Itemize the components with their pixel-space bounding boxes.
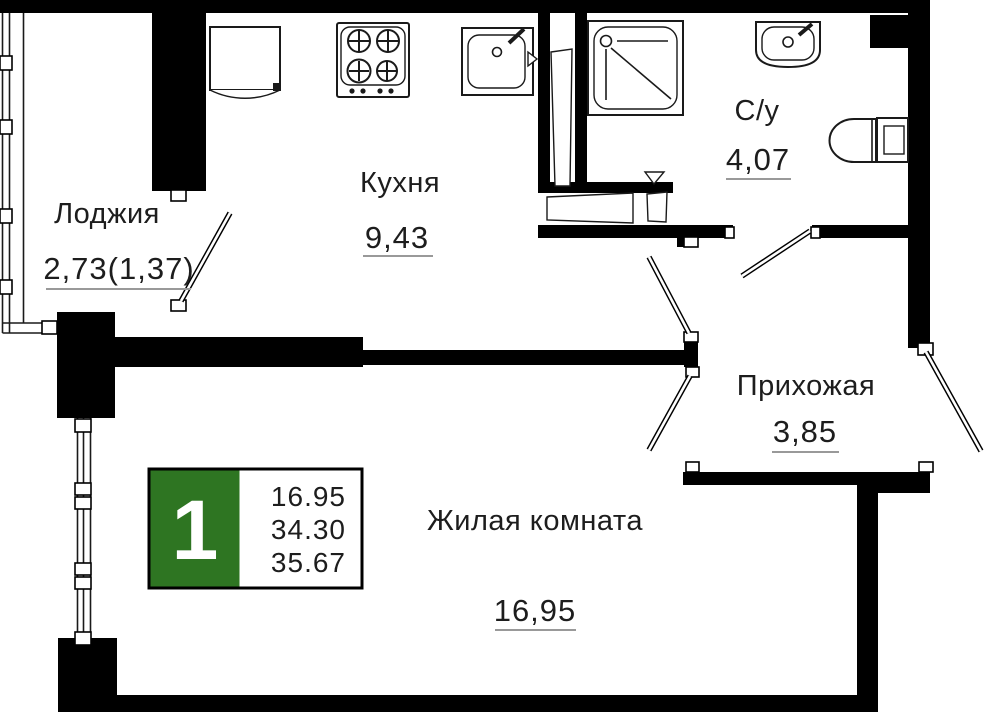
loggia-mullion-2 xyxy=(0,120,12,134)
living-window-mullion-2 xyxy=(75,483,91,495)
kitchen-door xyxy=(649,237,698,342)
stove-burner-3 xyxy=(348,60,371,83)
bathroom-door-jamb-right xyxy=(811,227,820,238)
closet-leaf-large xyxy=(547,193,633,223)
room-name-bath: С/у xyxy=(735,95,780,127)
stove-knob-1 xyxy=(349,88,354,93)
wall-living-left-bottom-block xyxy=(58,638,117,712)
fridge-hinge xyxy=(273,83,280,91)
stove-knob-2 xyxy=(360,88,365,93)
fridge-icon xyxy=(210,27,280,98)
loggia-mullion-5 xyxy=(42,321,57,334)
wall-bath-bottom-left xyxy=(538,225,733,238)
badge-area-main: 34.30 xyxy=(271,514,346,545)
stove-burner-1 xyxy=(348,30,370,52)
wall-bath-bottom-right xyxy=(812,225,908,238)
loggia-mullion-1 xyxy=(0,56,12,70)
wall-right-outer xyxy=(908,13,930,348)
floor-plan: Лоджия 2,73(1,37) Кухня 9,43 С/у 4,07 Пр… xyxy=(0,0,1000,723)
bathroom-door xyxy=(725,227,820,276)
bathroom-door-jamb-left xyxy=(725,227,734,238)
wall-kitchen-bottom xyxy=(362,350,685,365)
wall-loggia-kitchen-column xyxy=(152,13,206,191)
stove-knob-4 xyxy=(388,88,393,93)
entry-door xyxy=(918,343,981,472)
washbasin-inner xyxy=(762,27,814,60)
wall-living-bottom xyxy=(58,695,878,712)
badge-rooms-count: 1 xyxy=(172,483,219,577)
living-room-door xyxy=(649,367,699,472)
kitchen-sink-basin xyxy=(468,35,525,88)
info-badge: 1 16.95 34.30 35.67 xyxy=(149,469,362,588)
stove-icon xyxy=(337,23,409,97)
living-window-mullion-4 xyxy=(75,563,91,575)
toilet-tank-inner xyxy=(884,126,904,154)
room-area-kitchen: 9,43 xyxy=(365,220,429,255)
living-window-mullion-1 xyxy=(75,419,91,432)
walls xyxy=(0,0,930,712)
wall-kitchen-right xyxy=(538,13,550,193)
living-window-mullion-6 xyxy=(75,632,91,645)
closet-leaf-small xyxy=(647,192,667,222)
living-room-window xyxy=(75,418,91,645)
badge-area-living: 16.95 xyxy=(271,481,346,512)
kitchen-sink-icon xyxy=(462,28,537,95)
stove-knob-3 xyxy=(377,88,382,93)
kitchen-door-jamb-top xyxy=(684,237,698,247)
room-name-hall: Прихожая xyxy=(737,370,875,402)
stove-burner-4 xyxy=(377,61,397,81)
kitchen-door-jamb-bottom xyxy=(684,332,698,342)
living-window-mullion-5 xyxy=(75,577,91,589)
duct-slot-leaf xyxy=(551,49,572,186)
living-window-mullion-3 xyxy=(75,497,91,509)
room-area-loggia: 2,73(1,37) xyxy=(43,251,194,286)
toilet-icon xyxy=(830,118,909,162)
room-name-loggia: Лоджия xyxy=(54,198,160,230)
floor-plan-canvas: Лоджия 2,73(1,37) Кухня 9,43 С/у 4,07 Пр… xyxy=(0,0,1000,723)
room-area-bath: 4,07 xyxy=(726,142,790,177)
room-name-kitchen: Кухня xyxy=(360,167,440,199)
kitchen-fixtures xyxy=(210,23,537,98)
shower-icon xyxy=(588,21,683,115)
loggia-mullion-4 xyxy=(0,280,12,294)
toilet-bowl xyxy=(830,119,877,162)
room-area-living: 16,95 xyxy=(494,593,577,628)
wall-duct xyxy=(575,13,587,193)
badge-area-total: 35.67 xyxy=(271,547,346,578)
wall-top xyxy=(0,0,930,13)
wall-hall-bottom xyxy=(683,472,930,485)
fridge-body xyxy=(210,27,280,90)
room-name-living: Жилая комната xyxy=(427,505,643,537)
fridge-door-arc xyxy=(210,90,280,98)
living-door-jamb-bottom xyxy=(686,462,699,472)
washbasin-icon xyxy=(756,22,820,67)
loggia-door-jamb-top xyxy=(171,190,186,201)
wall-hall-pier xyxy=(684,340,698,367)
wall-band-loggia-bottom xyxy=(57,337,363,367)
entry-door-jamb-bottom xyxy=(919,462,933,472)
wall-living-right xyxy=(857,485,878,712)
room-area-hall: 3,85 xyxy=(773,414,837,449)
wall-top-right-pier xyxy=(870,15,908,48)
loggia-mullion-3 xyxy=(0,209,12,223)
stove-burner-2 xyxy=(377,30,399,52)
